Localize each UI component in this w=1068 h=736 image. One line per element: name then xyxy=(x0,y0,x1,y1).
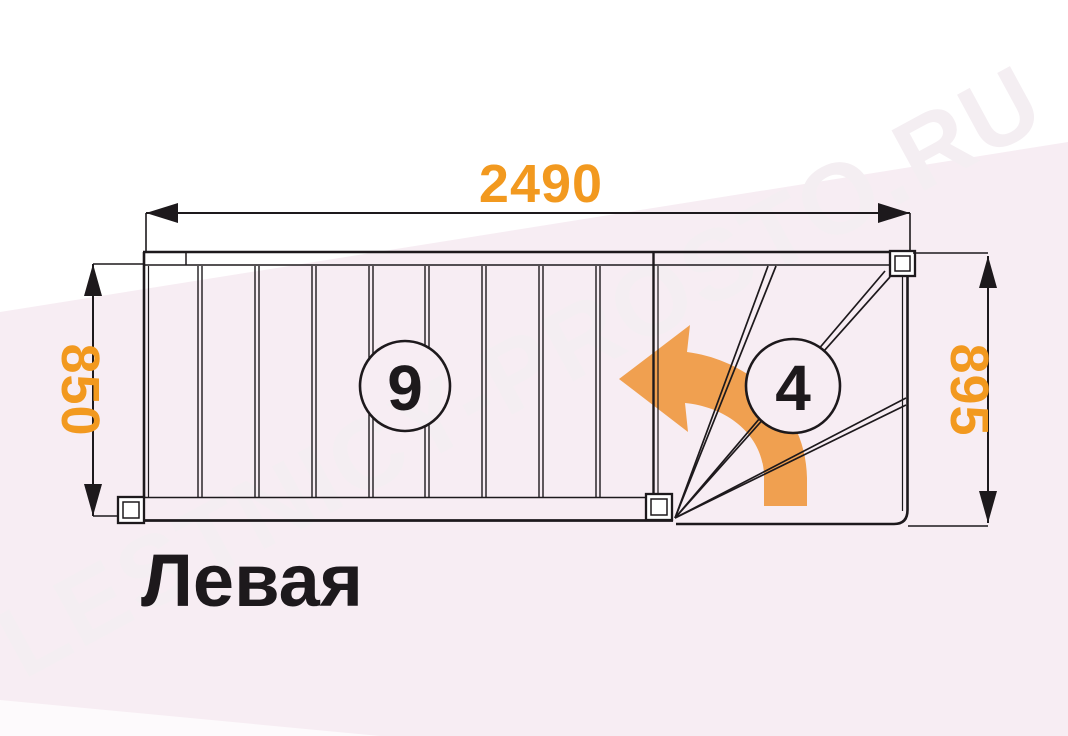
dimension-arrowhead-down xyxy=(979,491,997,523)
dimension-total-length: 2490 xyxy=(146,154,910,251)
stair-plan-page: LESTNICY-PROSTO.RU xyxy=(0,0,1068,736)
dimension-arrowhead-right xyxy=(878,203,910,223)
dimension-winder-width: 895 xyxy=(908,253,999,526)
dimension-label-winder-width: 895 xyxy=(939,343,999,436)
stair-type-title: Левая xyxy=(141,539,363,622)
dimension-flight-width: 850 xyxy=(50,264,143,516)
dimension-arrowhead-up xyxy=(84,264,102,296)
newel-post-top-right-inner xyxy=(895,256,910,271)
dimension-label-total-length: 2490 xyxy=(479,154,603,214)
newel-post-center-inner xyxy=(651,499,667,515)
dimension-arrowhead-down xyxy=(84,484,102,516)
straight-steps-count: 9 xyxy=(387,352,423,424)
winder-steps-count: 4 xyxy=(775,352,811,424)
staircase-plan-drawing: 9 4 2490 850 89 xyxy=(0,0,1068,736)
dimension-label-flight-width: 850 xyxy=(50,343,110,436)
dimension-arrowhead-up xyxy=(979,256,997,288)
dimension-arrowhead-left xyxy=(146,203,178,223)
newel-post-bottom-left-inner xyxy=(123,502,139,518)
